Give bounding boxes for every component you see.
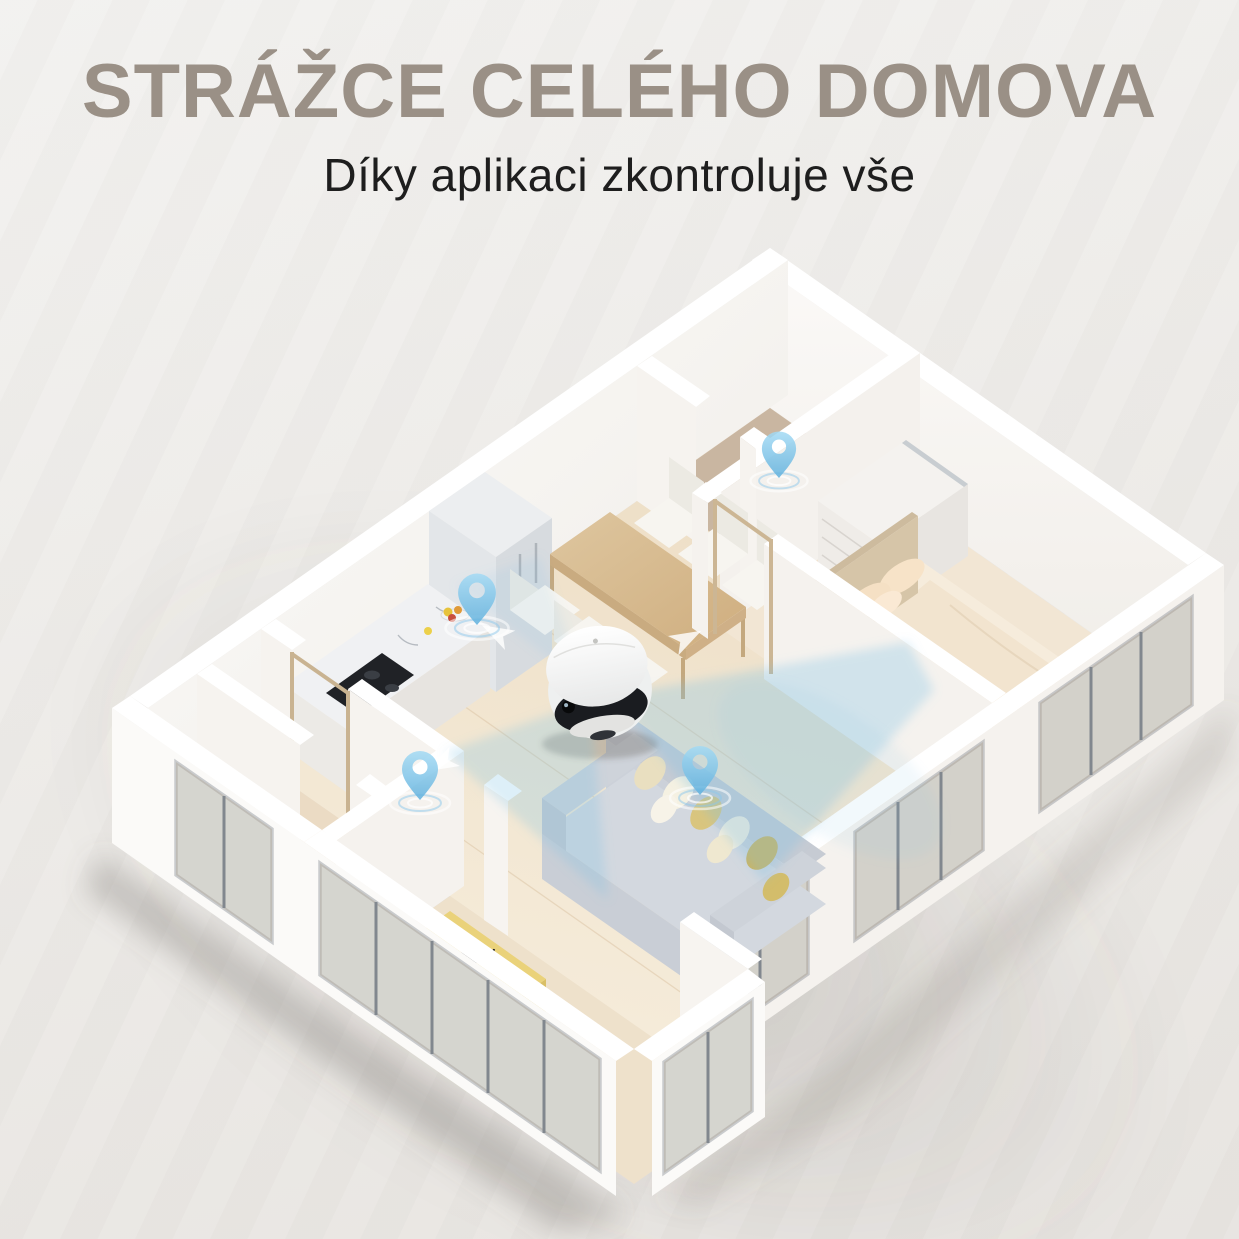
header: STRÁŽCE CELÉHO DOMOVA Díky aplikaci zkon…: [0, 52, 1239, 202]
fruit: [454, 606, 462, 614]
page-title: STRÁŽCE CELÉHO DOMOVA: [0, 52, 1239, 132]
page-subtitle: Díky aplikaci zkontroluje vše: [0, 148, 1239, 202]
fruit: [424, 627, 432, 635]
poster-canvas: STRÁŽCE CELÉHO DOMOVA Díky aplikaci zkon…: [0, 0, 1239, 1239]
